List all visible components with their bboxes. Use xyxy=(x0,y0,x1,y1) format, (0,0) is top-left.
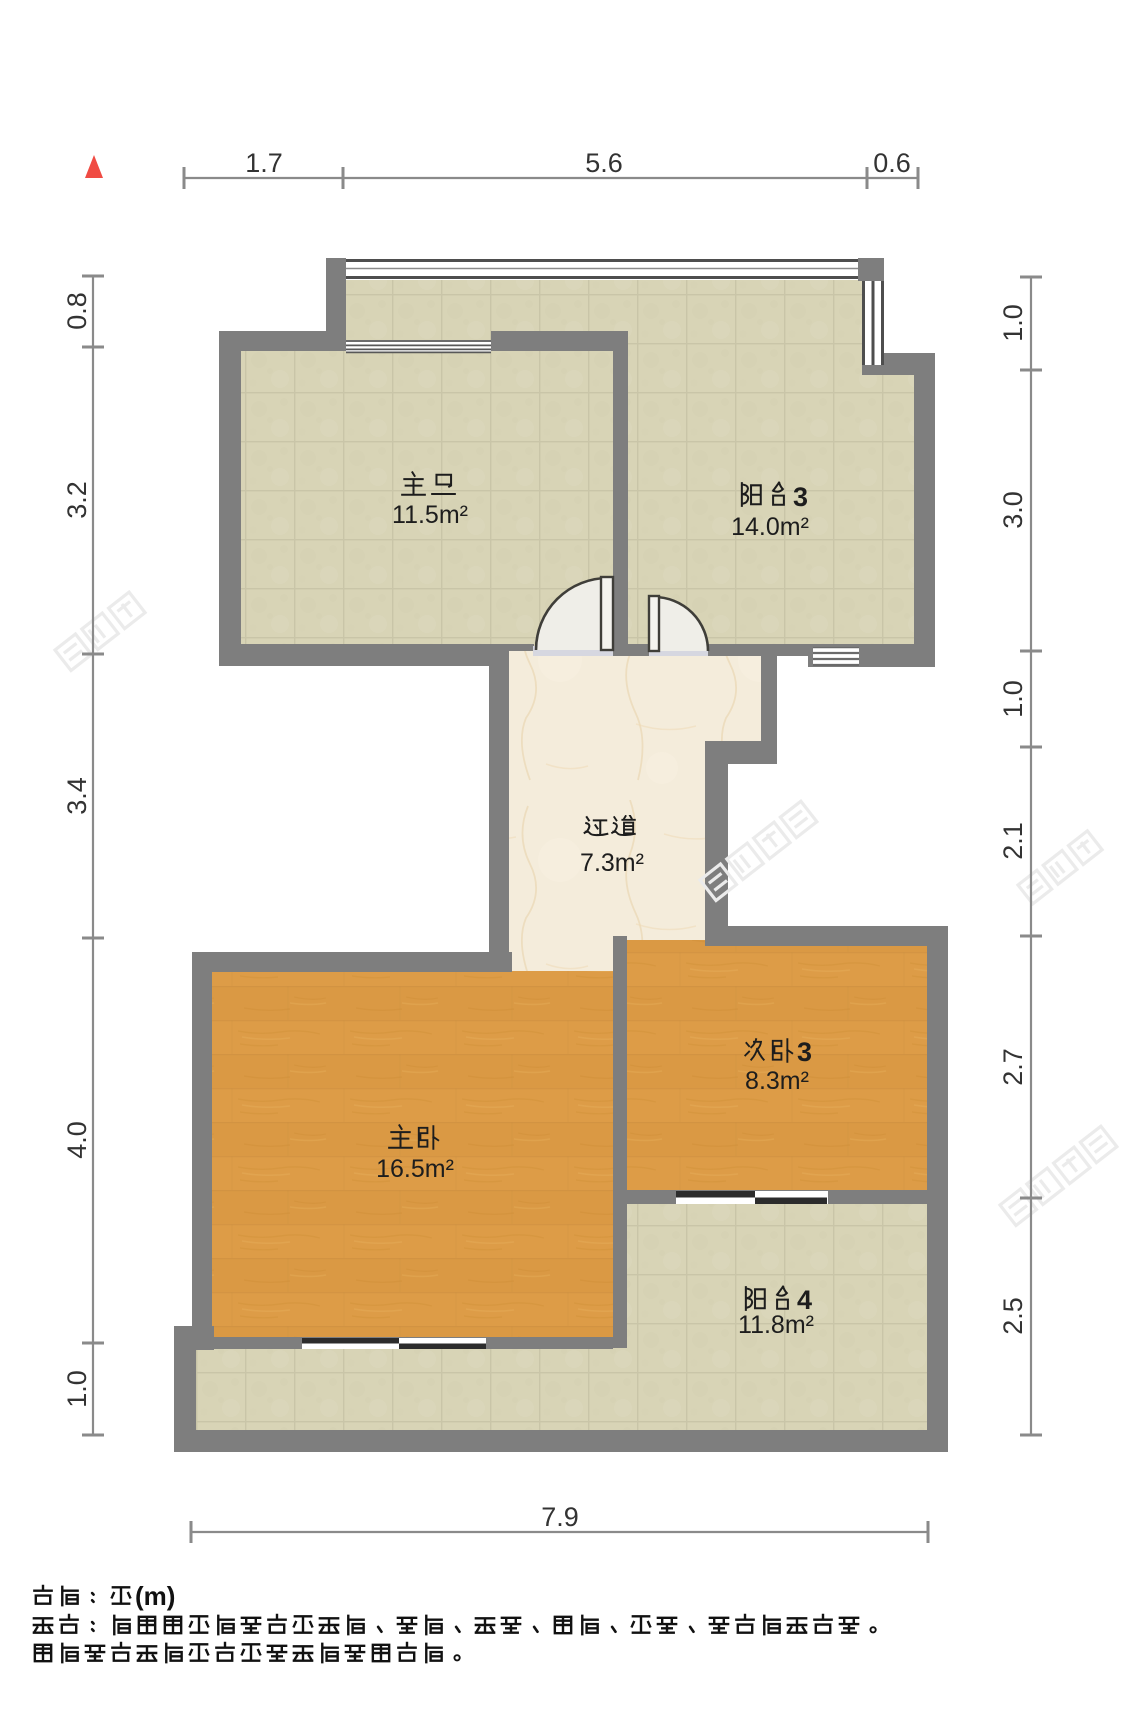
svg-text:5.6: 5.6 xyxy=(585,148,623,178)
svg-text:3: 3 xyxy=(797,1037,812,1067)
svg-text:7.9: 7.9 xyxy=(541,1502,579,1532)
svg-text:0.8: 0.8 xyxy=(62,292,92,330)
svg-text:11.5m²: 11.5m² xyxy=(392,501,468,529)
svg-text:3: 3 xyxy=(793,482,808,512)
svg-text:3.2: 3.2 xyxy=(62,481,92,519)
svg-text:4.0: 4.0 xyxy=(62,1121,92,1159)
svg-text:1.0: 1.0 xyxy=(62,1370,92,1408)
svg-text:2.5: 2.5 xyxy=(998,1297,1028,1335)
svg-text:1.0: 1.0 xyxy=(998,304,1028,342)
svg-text:0.6: 0.6 xyxy=(873,148,911,178)
svg-text:3.4: 3.4 xyxy=(62,777,92,815)
svg-text:7.3m²: 7.3m² xyxy=(580,849,644,877)
svg-text:1.7: 1.7 xyxy=(245,148,283,178)
svg-text:8.3m²: 8.3m² xyxy=(745,1067,809,1095)
svg-text:11.8m²: 11.8m² xyxy=(738,1311,814,1339)
svg-text:2.7: 2.7 xyxy=(998,1048,1028,1086)
svg-text:3.0: 3.0 xyxy=(998,491,1028,529)
svg-text:(m): (m) xyxy=(135,1581,175,1611)
svg-text:1.0: 1.0 xyxy=(998,680,1028,718)
svg-text:2.1: 2.1 xyxy=(998,822,1028,860)
svg-text:16.5m²: 16.5m² xyxy=(376,1155,454,1183)
svg-text:14.0m²: 14.0m² xyxy=(731,513,809,541)
